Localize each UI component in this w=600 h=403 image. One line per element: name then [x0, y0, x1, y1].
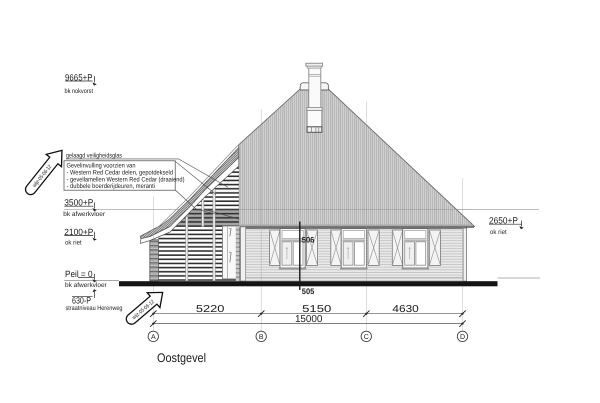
svg-text:2650+P: 2650+P [489, 215, 518, 225]
svg-text:D: D [460, 334, 465, 341]
svg-text:bk afwerkvloer: bk afwerkvloer [65, 282, 108, 289]
svg-text:ok riet: ok riet [490, 229, 507, 236]
svg-text:505: 505 [302, 287, 315, 296]
svg-text:straatniveau Herenweg: straatniveau Herenweg [66, 305, 123, 312]
svg-text:Gevelinvulling voorzien van: Gevelinvulling voorzien van [67, 162, 136, 169]
svg-text:4630: 4630 [392, 304, 419, 315]
svg-text:C: C [364, 334, 369, 341]
svg-text:bk nokvorst: bk nokvorst [65, 88, 94, 95]
svg-text:gelaagd veiligheidsglas: gelaagd veiligheidsglas [66, 153, 123, 160]
svg-text:15000: 15000 [295, 314, 323, 325]
svg-text:Oostgevel: Oostgevel [157, 351, 206, 365]
svg-text:- dubbele boerderijdeuren, mer: - dubbele boerderijdeuren, meranti [67, 183, 156, 190]
svg-text:A: A [151, 334, 156, 341]
svg-text:ok riet: ok riet [65, 240, 82, 247]
svg-text:B: B [259, 334, 264, 341]
svg-text:5220: 5220 [196, 304, 225, 315]
svg-text:bk afwerkvloer: bk afwerkvloer [63, 211, 106, 218]
svg-text:506: 506 [302, 235, 315, 244]
